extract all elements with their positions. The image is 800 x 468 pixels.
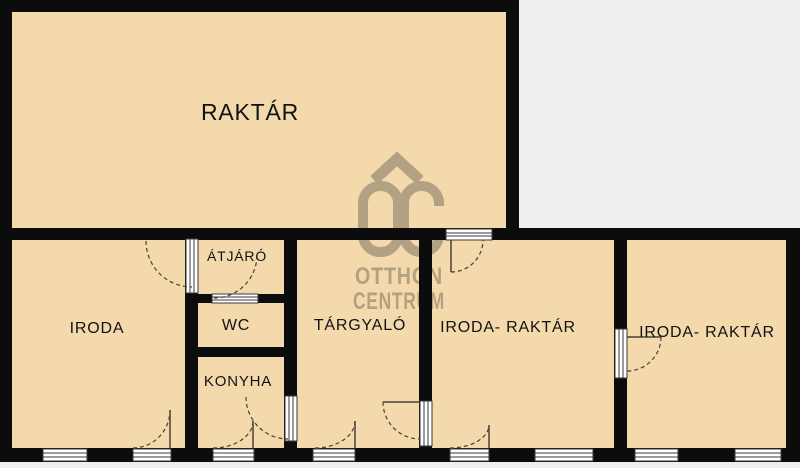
room-label-iroda: IRODA	[70, 320, 125, 337]
wall-bottom	[0, 448, 800, 462]
room-label-konyha: KONYHA	[204, 373, 272, 390]
door-frame-atjaro-wc	[212, 294, 258, 303]
room-label-wc: WC	[222, 317, 250, 334]
floor-plan-canvas: OTTHON CENTRUM	[0, 0, 800, 468]
door-frame-irodaraktar1-bottom	[450, 449, 489, 461]
wall-mid-horizontal	[0, 228, 800, 240]
room-label-iroda-raktar-1: IRODA- RAKTÁR	[440, 317, 576, 336]
window-iroda-left	[43, 449, 87, 461]
door-frame-irodaraktar1-irodaraktar2	[615, 329, 627, 378]
door-frame-targyalo-bottom	[313, 449, 355, 461]
door-frame-iroda-bottom	[133, 449, 171, 461]
door-frame-konyha-bottom	[213, 449, 254, 461]
wall-top	[0, 0, 519, 12]
room-label-iroda-raktar-2: IRODA- RAKTÁR	[639, 322, 775, 341]
door-frame-konyha-targyalo	[285, 396, 297, 441]
room-label-raktar: RAKTÁR	[201, 99, 299, 125]
window-irodaraktar2-bottom-left	[635, 449, 678, 461]
window-irodaraktar2-bottom-right	[735, 449, 781, 461]
door-frame-iroda-atjaro	[186, 239, 198, 293]
room-label-atjaro: ÁTJÁRÓ	[207, 248, 267, 264]
door-frame-targyalo-irodaraktar1	[420, 401, 432, 446]
room-label-targyalo: TÁRGYALÓ	[314, 315, 406, 334]
window-irodaraktar1-bottom	[535, 449, 593, 461]
wall-wc-konyha	[198, 347, 284, 357]
wall-right	[786, 228, 800, 462]
wall-raktar-right	[506, 0, 519, 240]
floor-plan-drawing: OTTHON CENTRUM	[0, 0, 800, 468]
door-frame-raktar-irodaraktar1	[446, 229, 492, 240]
